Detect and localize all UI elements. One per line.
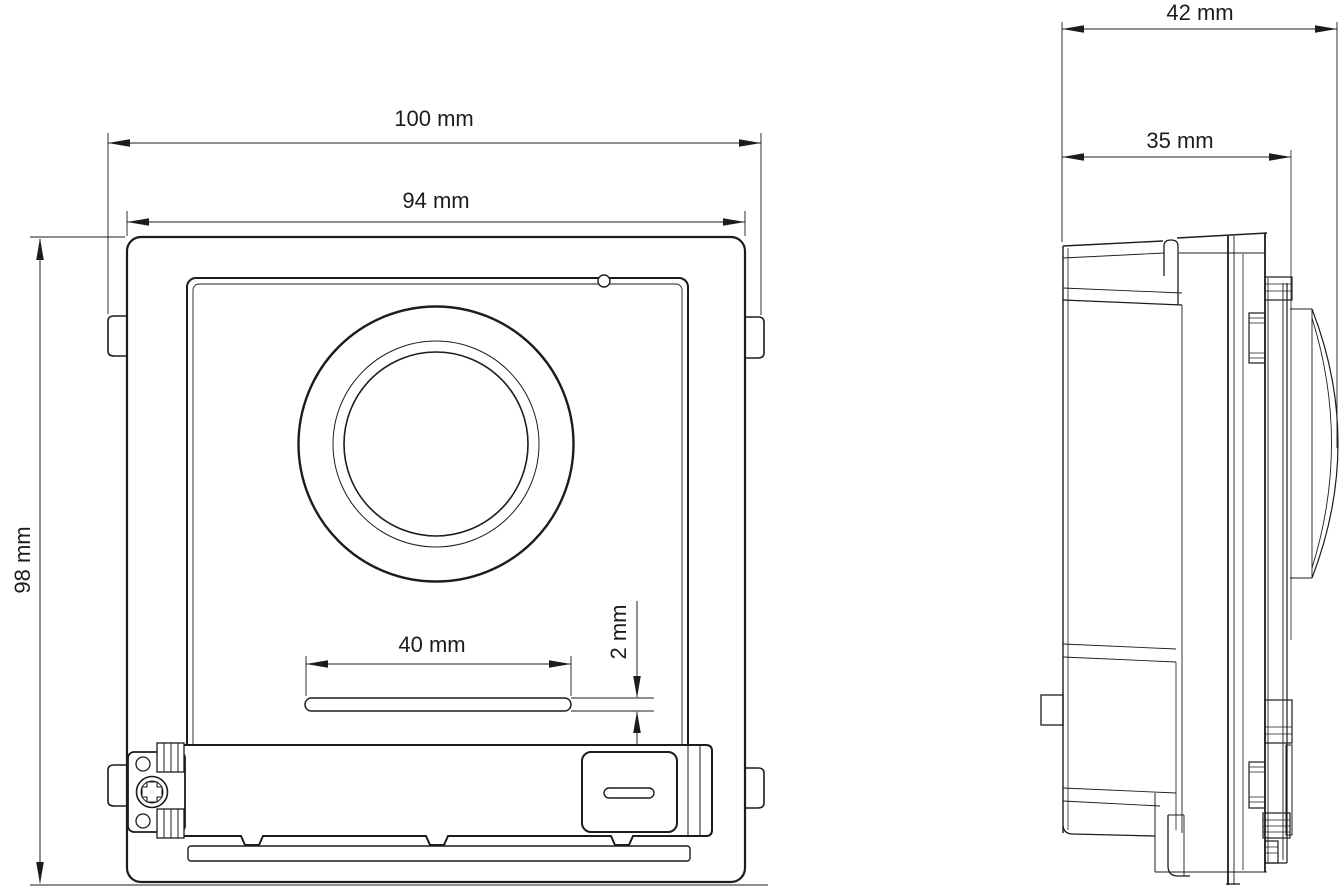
- ribbed-block-upper: [1249, 313, 1265, 363]
- frame-tab-right-bottom: [745, 768, 764, 808]
- call-button-slot: [604, 788, 654, 798]
- arrowhead-left-icon: [306, 660, 328, 668]
- back-box-mid-shelf: [1063, 644, 1176, 662]
- back-box-top-edge: [1063, 241, 1163, 246]
- arrowhead-left-icon: [1062, 153, 1084, 161]
- arrowhead-right-icon: [549, 660, 571, 668]
- dim-panel-width: 94 mm: [127, 188, 745, 236]
- din-clip-hook: [1168, 815, 1190, 876]
- dim-body-depth-label: 35 mm: [1146, 128, 1213, 153]
- dimension-drawing-svg: 100 mm 94 mm 98 mm 40 mm 2 mm 42 mm: [0, 0, 1340, 886]
- back-box-left-lug: [1041, 695, 1063, 725]
- back-box-lower-shelf: [1063, 788, 1176, 806]
- dim-outer-width-label: 100 mm: [394, 106, 473, 131]
- front-view: [108, 237, 764, 882]
- back-box-flange-1: [1063, 288, 1182, 293]
- plate-hole-bottom: [136, 814, 150, 828]
- arrowhead-up-icon: [36, 238, 44, 260]
- dim-outer-width-extension-lines: [108, 133, 761, 315]
- arrowhead-right-icon: [1315, 25, 1337, 33]
- camera-dome: [1290, 309, 1338, 578]
- dim-panel-width-extension-lines: [127, 211, 745, 236]
- ribbed-block-upper-lines: [1249, 318, 1265, 358]
- ribbed-foot: [1265, 841, 1278, 863]
- back-box-bottom-edge: [1063, 826, 1155, 836]
- base-strip: [188, 846, 690, 861]
- frame-tab-left-bottom: [108, 765, 127, 806]
- arrowhead-right-icon: [1269, 153, 1291, 161]
- dim-total-depth-extension-lines: [1062, 22, 1337, 448]
- cover-top-block: [1265, 277, 1292, 300]
- dim-slot-height-extension-lines: [571, 698, 654, 711]
- camera-rings: [299, 307, 574, 582]
- call-button: [582, 752, 677, 832]
- plate-hole-top: [136, 757, 150, 771]
- camera-ring-middle: [333, 341, 539, 547]
- back-box-flange-2: [1063, 300, 1182, 305]
- connector-blocks: [1249, 313, 1292, 863]
- dim-slot-height-label: 2 mm: [606, 605, 631, 660]
- camera-ring-inner: [344, 352, 528, 536]
- dim-total-depth: 42 mm: [1062, 0, 1337, 448]
- dim-height-label: 98 mm: [10, 526, 35, 593]
- drawing-canvas: 100 mm 94 mm 98 mm 40 mm 2 mm 42 mm: [0, 0, 1340, 886]
- arrowhead-up-icon: [633, 711, 641, 733]
- ribbed-block-lower: [1249, 762, 1265, 808]
- dim-slot-width-extension-lines: [306, 656, 571, 696]
- ribbed-block-lower-lines: [1249, 767, 1265, 802]
- ribbed-foot-lines: [1265, 847, 1278, 853]
- arrowhead-left-icon: [1062, 25, 1084, 33]
- dim-slot-width-label: 40 mm: [398, 632, 465, 657]
- dim-panel-width-label: 94 mm: [402, 188, 469, 213]
- locking-screw-assembly: [128, 743, 185, 838]
- dim-total-depth-label: 42 mm: [1166, 0, 1233, 25]
- camera-ring-outer: [299, 307, 574, 582]
- terminal-block-lines: [1265, 727, 1292, 734]
- dome-inner-arc: [1312, 318, 1332, 568]
- frame-tab-left-top: [108, 316, 127, 356]
- dim-slot-height: 2 mm: [571, 601, 654, 744]
- dim-body-depth: 35 mm: [1062, 128, 1291, 640]
- arrowhead-down-icon: [36, 862, 44, 884]
- speaker-slot: [305, 698, 571, 711]
- arrowhead-right-icon: [723, 218, 745, 226]
- arrowhead-down-icon: [633, 676, 641, 698]
- dome-base-edges: [1290, 309, 1312, 578]
- frame-tab-right-top: [745, 317, 764, 358]
- plate-top-edge: [1177, 233, 1267, 238]
- module-plate: [1155, 233, 1267, 885]
- dome-outer-arc: [1312, 309, 1338, 578]
- arrowhead-right-icon: [739, 139, 761, 147]
- side-view: [1041, 233, 1338, 885]
- side-front-cover: [1265, 277, 1292, 863]
- back-box-top-cap: [1164, 240, 1178, 305]
- microphone-hole: [598, 275, 610, 287]
- back-box: [1041, 240, 1190, 876]
- back-box-top-inner: [1063, 253, 1164, 258]
- cover-top-block-lines: [1265, 284, 1292, 291]
- terminal-block: [1265, 700, 1292, 743]
- arrowhead-left-icon: [108, 139, 130, 147]
- dim-slot-width: 40 mm: [306, 632, 571, 696]
- arrowhead-left-icon: [127, 218, 149, 226]
